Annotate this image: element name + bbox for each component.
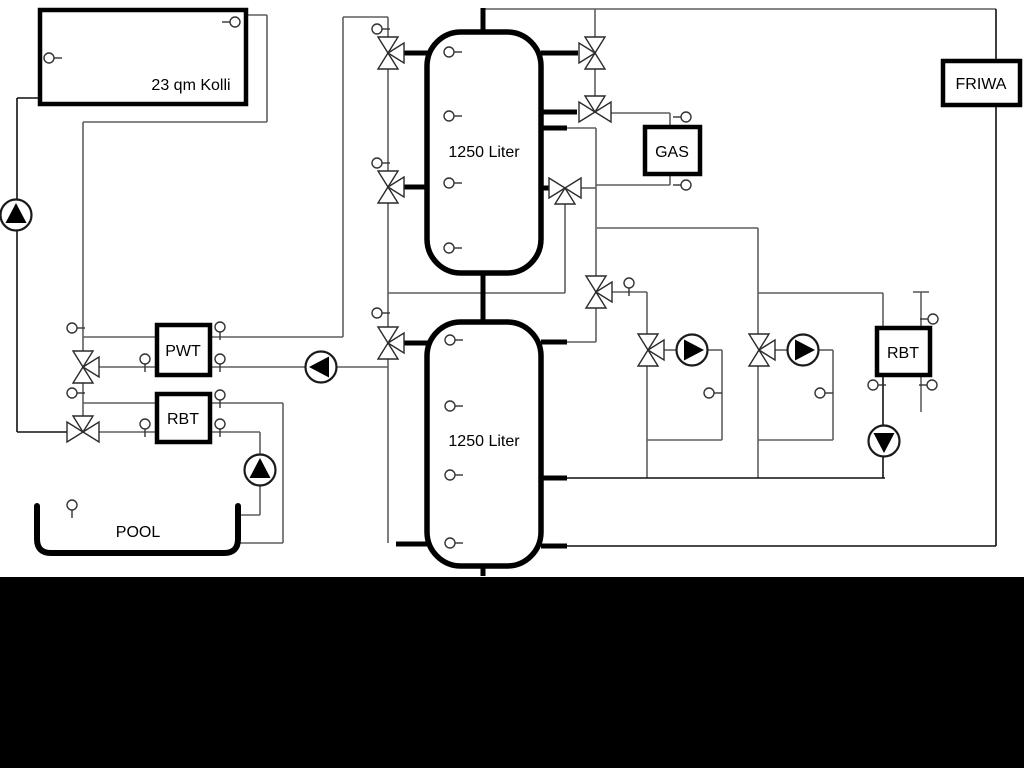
pool-label: POOL xyxy=(116,524,161,541)
pool-pump-icon xyxy=(245,455,276,486)
solar-collector-label: 23 qm Kolli xyxy=(151,77,230,94)
letterbox-bar xyxy=(0,577,1024,768)
circuit1-pump-icon xyxy=(677,335,708,366)
friwa-label: FRIWA xyxy=(956,76,1007,93)
pwt-label: PWT xyxy=(165,343,201,360)
rbt-right-label: RBT xyxy=(887,345,919,362)
solar-pump-icon xyxy=(1,200,32,231)
pwt-pump-icon xyxy=(306,352,337,383)
circuit2-pump-icon xyxy=(788,335,819,366)
upper-tank-label: 1250 Liter xyxy=(448,144,520,161)
hydraulic-schematic: POOL 23 qm Kolli 1250 Liter 1250 Liter P… xyxy=(0,0,1024,768)
schematic-canvas: POOL 23 qm Kolli 1250 Liter 1250 Liter P… xyxy=(0,0,1024,768)
rbt-left-label: RBT xyxy=(167,411,199,428)
gas-label: GAS xyxy=(655,144,689,161)
lower-tank-label: 1250 Liter xyxy=(448,433,520,450)
rbt-right-pump-icon xyxy=(869,426,900,457)
